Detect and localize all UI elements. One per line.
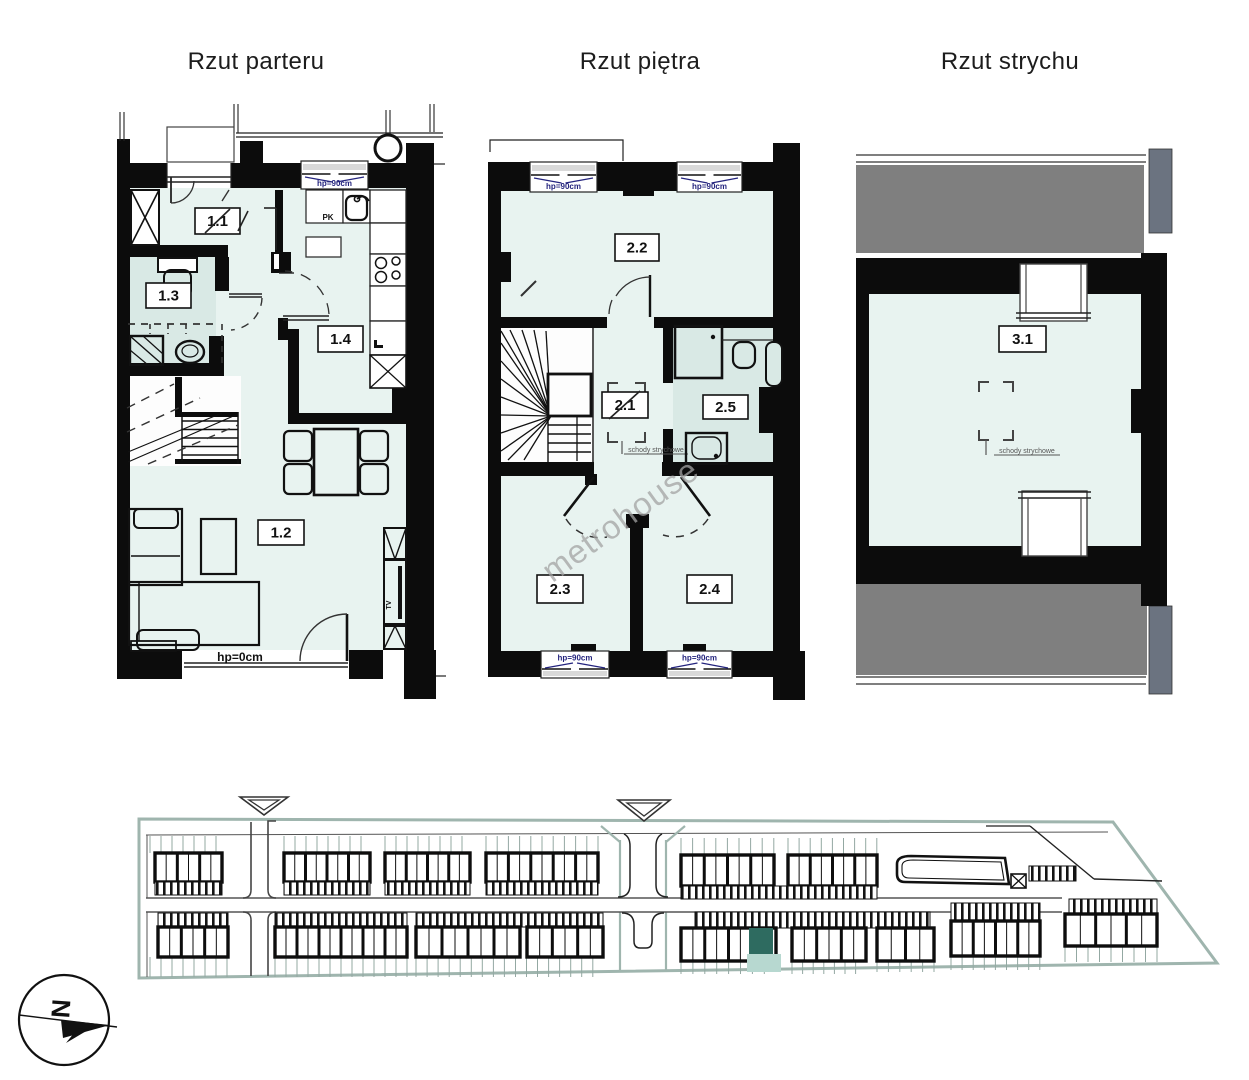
svg-text:3.1: 3.1 xyxy=(1012,331,1033,348)
svg-text:hp=90cm: hp=90cm xyxy=(558,654,593,663)
svg-text:Rzut parteru: Rzut parteru xyxy=(188,48,325,75)
svg-text:hp=90cm: hp=90cm xyxy=(546,182,581,191)
svg-text:hp=0cm: hp=0cm xyxy=(217,650,263,664)
svg-text:Rzut strychu: Rzut strychu xyxy=(941,48,1079,75)
svg-text:hp=90cm: hp=90cm xyxy=(317,179,352,188)
svg-text:2.4: 2.4 xyxy=(699,581,721,598)
svg-text:hp=90cm: hp=90cm xyxy=(682,654,717,663)
svg-text:N: N xyxy=(45,998,76,1019)
svg-text:hp=90cm: hp=90cm xyxy=(692,182,727,191)
svg-text:1.3: 1.3 xyxy=(158,288,179,305)
svg-text:2.5: 2.5 xyxy=(715,399,736,416)
svg-text:PK: PK xyxy=(322,213,333,222)
svg-text:schody strychowe: schody strychowe xyxy=(628,447,684,454)
svg-text:2.2: 2.2 xyxy=(627,240,648,257)
svg-text:1.4: 1.4 xyxy=(330,331,352,348)
svg-text:Rzut piętra: Rzut piętra xyxy=(580,48,701,75)
svg-text:1.2: 1.2 xyxy=(271,525,292,542)
svg-text:schody strychowe: schody strychowe xyxy=(999,448,1055,455)
svg-text:TV: TV xyxy=(386,600,393,609)
